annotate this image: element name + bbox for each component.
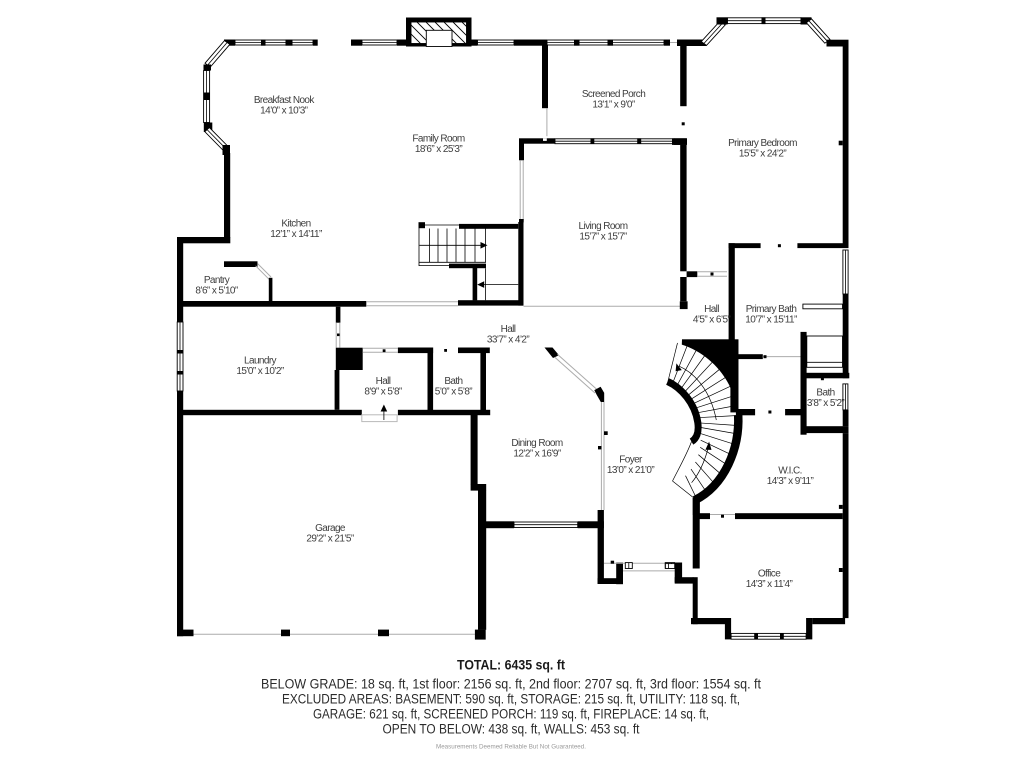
- svg-text:13’1” x 9’0”: 13’1” x 9’0”: [592, 99, 635, 110]
- svg-text:Bath: Bath: [444, 376, 462, 387]
- svg-text:Dining Room: Dining Room: [511, 438, 562, 449]
- svg-text:Hall: Hall: [376, 376, 391, 387]
- svg-text:12’2” x 16’9”: 12’2” x 16’9”: [513, 448, 560, 459]
- svg-text:Primary Bedroom: Primary Bedroom: [728, 138, 797, 149]
- svg-text:Pantry: Pantry: [204, 275, 230, 286]
- svg-text:Hall: Hall: [704, 304, 719, 315]
- svg-text:10’7” x 15’11”: 10’7” x 15’11”: [745, 315, 797, 326]
- svg-text:3’8” x 5’2”: 3’8” x 5’2”: [807, 398, 845, 409]
- svg-text:Screened Porch: Screened Porch: [582, 89, 645, 100]
- svg-text:BELOW GRADE: 18 sq. ft, 1st fl: BELOW GRADE: 18 sq. ft, 1st floor: 2156 …: [261, 677, 761, 692]
- svg-text:5’0” x 5’8”: 5’0” x 5’8”: [435, 387, 473, 398]
- svg-text:TOTAL: 6435 sq. ft: TOTAL: 6435 sq. ft: [457, 657, 565, 673]
- svg-text:Kitchen: Kitchen: [281, 219, 310, 230]
- svg-text:Bath: Bath: [816, 387, 834, 398]
- svg-text:15’5” x 24’2”: 15’5” x 24’2”: [739, 148, 786, 159]
- svg-text:Office: Office: [758, 569, 781, 580]
- svg-text:Breakfast Nook: Breakfast Nook: [254, 95, 316, 106]
- svg-text:EXCLUDED AREAS: BASEMENT: 590: EXCLUDED AREAS: BASEMENT: 590 sq. ft, ST…: [282, 692, 740, 707]
- svg-text:33’7” x 4’2”: 33’7” x 4’2”: [487, 335, 530, 346]
- svg-text:13’0” x 21’0”: 13’0” x 21’0”: [607, 465, 654, 476]
- svg-text:Garage: Garage: [315, 523, 346, 534]
- svg-text:18’6” x 25’3”: 18’6” x 25’3”: [415, 144, 462, 155]
- svg-text:15’7” x 15’7”: 15’7” x 15’7”: [579, 231, 626, 242]
- svg-text:15’0” x 10’2”: 15’0” x 10’2”: [236, 366, 283, 377]
- svg-text:14’3” x 11’4”: 14’3” x 11’4”: [746, 579, 793, 590]
- svg-text:OPEN TO BELOW: 438 sq. ft, WAL: OPEN TO BELOW: 438 sq. ft, WALLS: 453 sq…: [383, 722, 640, 737]
- svg-text:W.I.C.: W.I.C.: [778, 465, 802, 476]
- svg-text:14’3” x 9’11”: 14’3” x 9’11”: [767, 476, 814, 487]
- svg-text:8’6” x 5’10”: 8’6” x 5’10”: [195, 286, 238, 297]
- svg-text:Primary Bath: Primary Bath: [746, 304, 797, 315]
- svg-text:8’9” x 5’8”: 8’9” x 5’8”: [364, 387, 402, 398]
- svg-text:Measurements Deemed Reliable B: Measurements Deemed Reliable But Not Gua…: [436, 744, 586, 751]
- svg-text:12’1” x 14’11”: 12’1” x 14’11”: [270, 229, 322, 240]
- svg-text:Foyer: Foyer: [619, 455, 643, 466]
- svg-text:Family Room: Family Room: [412, 133, 465, 144]
- svg-text:GARAGE: 621 sq. ft, SCREENED P: GARAGE: 621 sq. ft, SCREENED PORCH: 119 …: [313, 707, 709, 722]
- svg-text:Hall: Hall: [501, 324, 516, 335]
- svg-text:Laundry: Laundry: [244, 355, 277, 366]
- svg-text:14’0” x 10’3”: 14’0” x 10’3”: [260, 105, 307, 116]
- svg-text:Living Room: Living Room: [579, 221, 628, 232]
- svg-text:4’5” x 6’5”: 4’5” x 6’5”: [693, 315, 731, 326]
- svg-text:29’2” x 21’5”: 29’2” x 21’5”: [306, 533, 353, 544]
